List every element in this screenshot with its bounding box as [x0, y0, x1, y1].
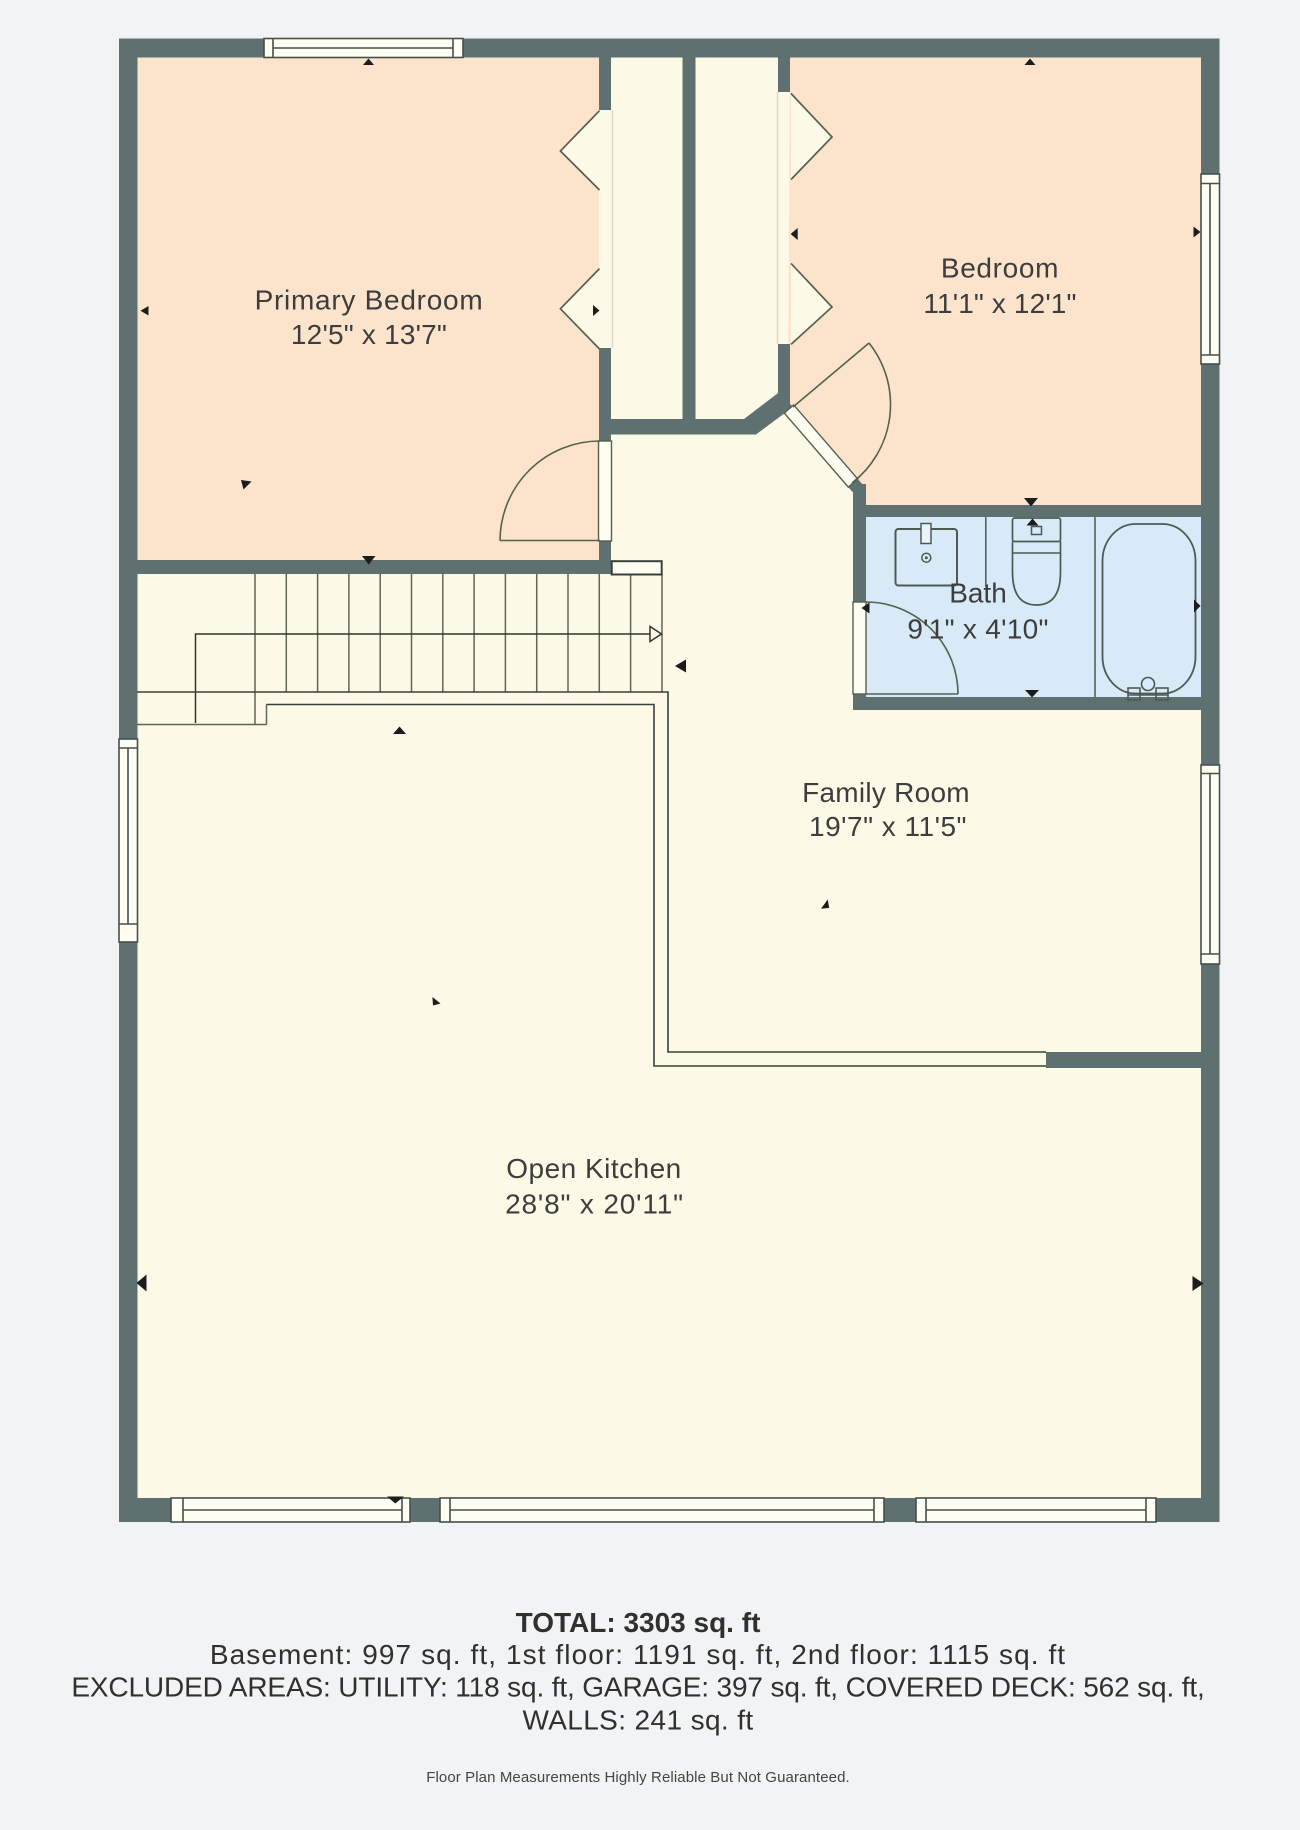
svg-text:Primary Bedroom: Primary Bedroom	[255, 285, 484, 316]
svg-text:WALLS: 241 sq. ft: WALLS: 241 sq. ft	[522, 1705, 753, 1736]
svg-text:Basement: 997 sq. ft, 1st floo: Basement: 997 sq. ft, 1st floor: 1191 sq…	[210, 1639, 1066, 1670]
svg-text:EXCLUDED AREAS: UTILITY: 118 s: EXCLUDED AREAS: UTILITY: 118 sq. ft, GAR…	[71, 1672, 1204, 1703]
svg-text:Family Room: Family Room	[802, 777, 970, 808]
svg-text:28'8" x 20'11": 28'8" x 20'11"	[505, 1189, 684, 1220]
svg-text:Open Kitchen: Open Kitchen	[506, 1153, 681, 1184]
svg-text:TOTAL: 3303 sq. ft: TOTAL: 3303 sq. ft	[516, 1607, 761, 1638]
svg-text:Bedroom: Bedroom	[941, 253, 1059, 284]
svg-text:9'1" x 4'10": 9'1" x 4'10"	[907, 614, 1048, 645]
svg-text:12'5" x 13'7": 12'5" x 13'7"	[291, 319, 447, 350]
svg-text:Floor Plan Measurements Highly: Floor Plan Measurements Highly Reliable …	[426, 1769, 850, 1786]
svg-text:11'1" x 12'1": 11'1" x 12'1"	[923, 288, 1076, 319]
svg-text:19'7" x 11'5": 19'7" x 11'5"	[809, 811, 967, 842]
svg-text:Bath: Bath	[949, 578, 1007, 609]
